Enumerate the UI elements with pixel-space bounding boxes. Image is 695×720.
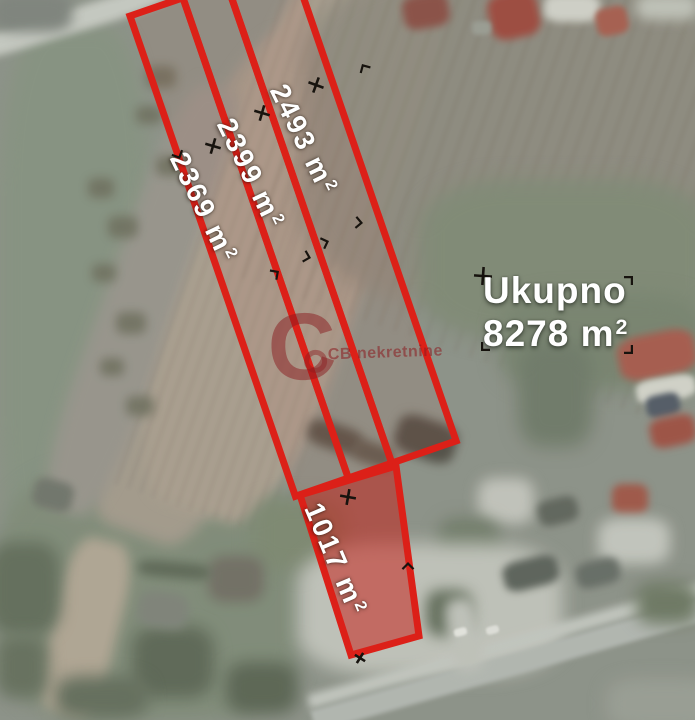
total-area-title: Ukupno xyxy=(483,272,628,309)
aerial-map: 2369 m2 2399 m2 2493 m2 1017 m2 Ukupno 8… xyxy=(0,0,695,720)
total-area-value: 8278 m2 xyxy=(483,309,628,352)
watermark-text: CB nekretnine xyxy=(328,342,444,364)
total-area-label: Ukupno 8278 m2 xyxy=(483,272,628,352)
total-area-number: 8278 m xyxy=(483,313,615,354)
total-area-sup: 2 xyxy=(616,315,629,339)
corner-tick-icon xyxy=(360,64,371,75)
watermark: C CB nekretnine xyxy=(266,309,469,406)
parcel-boundary-1017 xyxy=(300,466,419,655)
